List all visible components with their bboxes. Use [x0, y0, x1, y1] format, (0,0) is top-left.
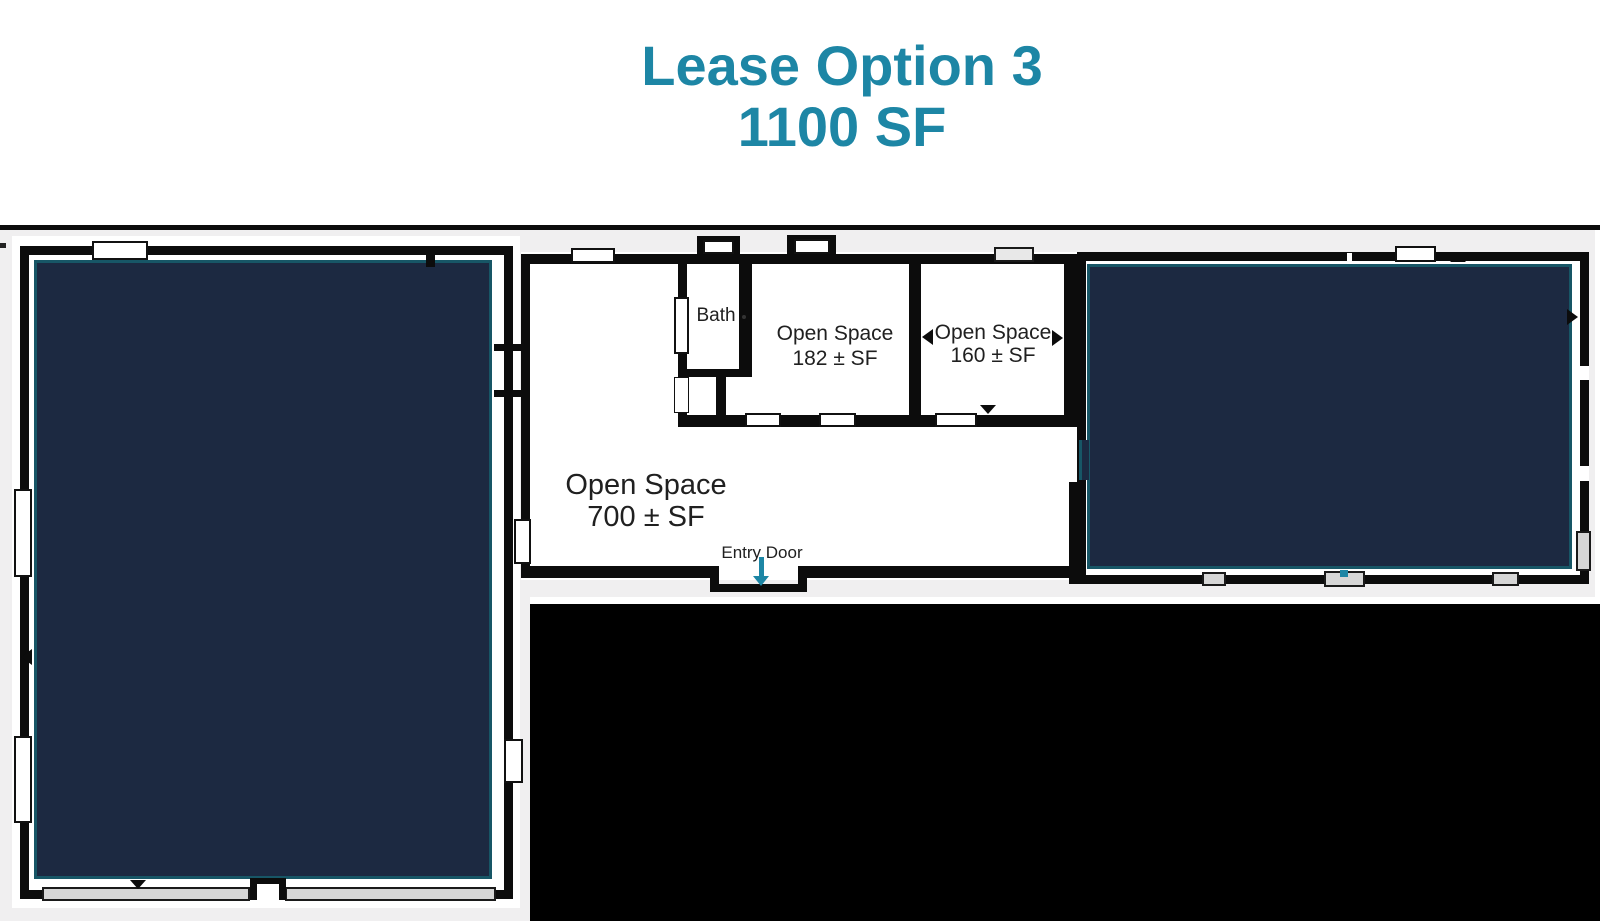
middle-top-window [571, 248, 615, 263]
bath-bumpout-window [703, 240, 734, 254]
left-unit-south-window-1 [42, 887, 250, 901]
left-unit-east-window [504, 739, 523, 783]
white-sliver [530, 597, 1600, 604]
left-unit-leased-area [34, 260, 492, 879]
left-unit-west-window-2 [14, 736, 32, 823]
door-marker-up-icon [977, 255, 993, 263]
middle-south-wall-left [521, 566, 717, 578]
bath-door-dot [742, 315, 746, 319]
door-marker-right-icon [1567, 309, 1578, 325]
right-unit-top-wall-joint [1347, 253, 1352, 262]
entry-door-label: Entry Door [682, 543, 842, 563]
right-unit-south-window-3 [1492, 572, 1519, 586]
room-160-label-line1: Open Space [893, 321, 1093, 345]
right-unit-top-window [1395, 246, 1436, 262]
right-unit-east-gap-2 [1578, 466, 1589, 481]
door-swing-down-icon [130, 880, 146, 889]
left-unit-south-window-2 [285, 887, 496, 901]
rooms-south-window-1 [745, 413, 781, 427]
masked-black-region [530, 604, 1600, 921]
door-marker-down-icon [980, 405, 996, 414]
door-swing-left-icon [21, 649, 32, 665]
middle-south-wall-right [806, 566, 1073, 578]
room182-bumpout-window [794, 239, 830, 254]
room-160-label-line2: 160 ± SF [893, 344, 1093, 368]
left-unit-south-post-inner [257, 884, 279, 900]
left-edge-tick [0, 243, 6, 248]
closet-west-door [674, 377, 689, 413]
right-unit-south-window-1 [1202, 572, 1226, 586]
room160-top-window [994, 247, 1034, 262]
door-marker-up-icon [1450, 254, 1466, 262]
page-title: Lease Option 3 [442, 38, 1242, 94]
left-unit-top-wall-jog [426, 246, 435, 267]
entry-door-arrow-icon [753, 576, 769, 586]
room-700-label-line2: 700 ± SF [516, 501, 776, 534]
right-unit-south-teal-tick [1340, 570, 1348, 577]
left-unit-west-window-1 [14, 489, 32, 577]
right-unit-west-wall-gap [1079, 440, 1089, 480]
floor-plan-page: Lease Option 3 1100 SF [0, 0, 1600, 921]
right-unit-leased-area [1087, 264, 1572, 569]
right-unit-east-window [1576, 531, 1591, 571]
right-unit-east-gap-1 [1578, 366, 1589, 380]
room-700-label-line1: Open Space [516, 469, 776, 502]
rooms-south-window-3 [935, 413, 977, 427]
right-unit-west-jut [1069, 482, 1085, 584]
rooms-south-window-2 [819, 413, 856, 427]
left-unit-top-window [92, 241, 148, 260]
page-subtitle-sf: 1100 SF [442, 99, 1242, 155]
rooms-south-wall [678, 415, 1085, 427]
